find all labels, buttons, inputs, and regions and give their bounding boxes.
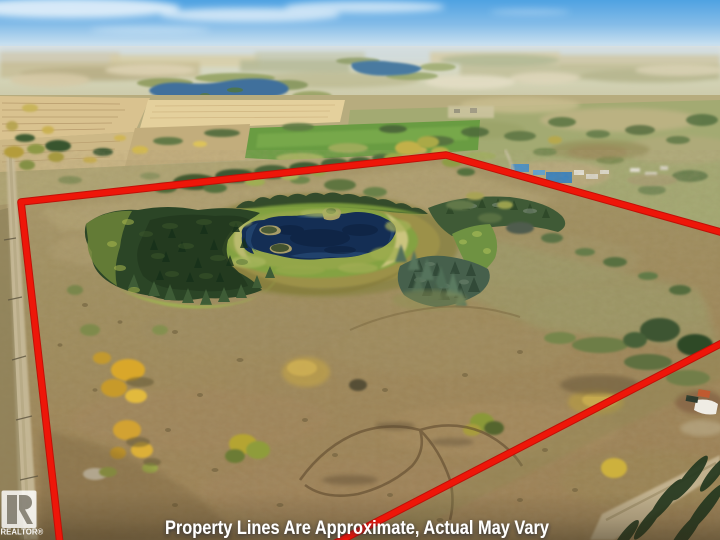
svg-text:Property Lines Are Approximate: Property Lines Are Approximate, Actual M…: [165, 517, 549, 539]
svg-text:REALTOR®: REALTOR®: [1, 528, 44, 537]
